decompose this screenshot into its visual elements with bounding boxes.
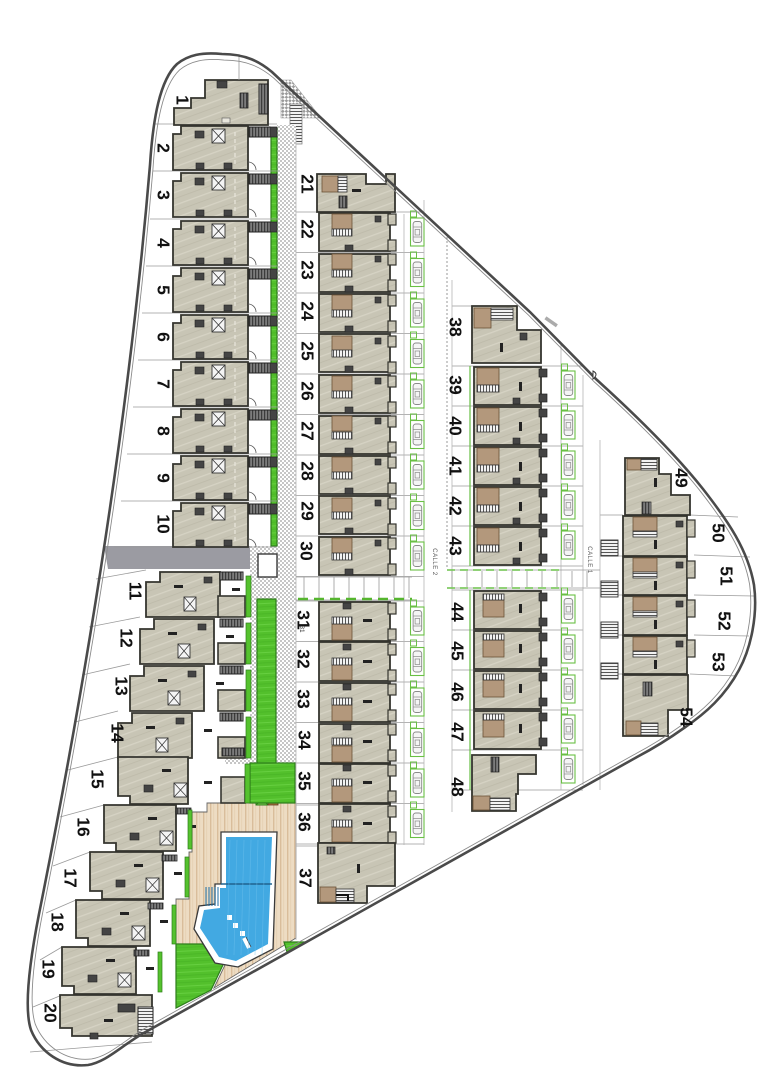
- svg-text:18: 18: [48, 912, 68, 932]
- svg-text:38: 38: [446, 317, 466, 337]
- svg-text:36: 36: [295, 812, 315, 832]
- svg-text:51: 51: [717, 566, 737, 586]
- svg-text:43: 43: [446, 536, 466, 556]
- svg-text:48: 48: [448, 777, 468, 797]
- svg-text:24: 24: [298, 301, 318, 321]
- svg-text:22: 22: [298, 219, 318, 239]
- svg-text:31: 31: [298, 625, 305, 633]
- svg-text:45: 45: [448, 641, 468, 661]
- svg-text:30: 30: [297, 541, 317, 561]
- svg-text:33: 33: [294, 689, 314, 709]
- svg-text:53: 53: [709, 652, 729, 672]
- svg-text:16: 16: [74, 817, 94, 837]
- svg-text:20: 20: [41, 1003, 61, 1023]
- svg-text:4: 4: [154, 238, 174, 248]
- svg-text:3: 3: [154, 190, 174, 200]
- svg-text:54: 54: [677, 707, 697, 727]
- svg-text:CALLE 2: CALLE 2: [431, 548, 437, 576]
- svg-text:21: 21: [298, 174, 318, 194]
- svg-text:52: 52: [715, 611, 735, 631]
- svg-text:50: 50: [709, 523, 729, 543]
- svg-text:41: 41: [446, 456, 466, 476]
- svg-text:17: 17: [61, 868, 81, 887]
- svg-text:15: 15: [88, 769, 108, 789]
- svg-text:40: 40: [446, 416, 466, 436]
- svg-text:35: 35: [295, 771, 315, 791]
- svg-text:27: 27: [298, 421, 318, 440]
- svg-text:37: 37: [296, 868, 316, 887]
- svg-text:14: 14: [108, 723, 128, 743]
- svg-text:19: 19: [39, 959, 59, 979]
- svg-text:26: 26: [298, 381, 318, 401]
- svg-text:11: 11: [126, 582, 146, 601]
- svg-text:39: 39: [446, 375, 466, 395]
- svg-text:47: 47: [448, 722, 468, 741]
- svg-text:13: 13: [112, 676, 132, 696]
- svg-text:10: 10: [154, 514, 174, 534]
- svg-text:8: 8: [154, 426, 174, 436]
- svg-text:1: 1: [173, 95, 193, 105]
- svg-text:12: 12: [117, 628, 137, 648]
- svg-text:5: 5: [154, 285, 174, 295]
- svg-text:CALLE 1: CALLE 1: [586, 546, 592, 574]
- svg-text:2: 2: [154, 143, 174, 153]
- svg-text:25: 25: [298, 341, 318, 361]
- svg-text:28: 28: [298, 461, 318, 481]
- svg-text:29: 29: [298, 501, 318, 521]
- svg-text:42: 42: [446, 496, 466, 516]
- svg-text:32: 32: [294, 649, 314, 669]
- svg-text:23: 23: [298, 260, 318, 280]
- svg-text:34: 34: [295, 730, 315, 750]
- svg-text:9: 9: [154, 473, 174, 483]
- svg-text:44: 44: [448, 602, 468, 622]
- svg-text:6: 6: [154, 332, 174, 342]
- svg-text:7: 7: [154, 379, 174, 389]
- svg-text:49: 49: [672, 468, 692, 488]
- svg-text:46: 46: [448, 682, 468, 702]
